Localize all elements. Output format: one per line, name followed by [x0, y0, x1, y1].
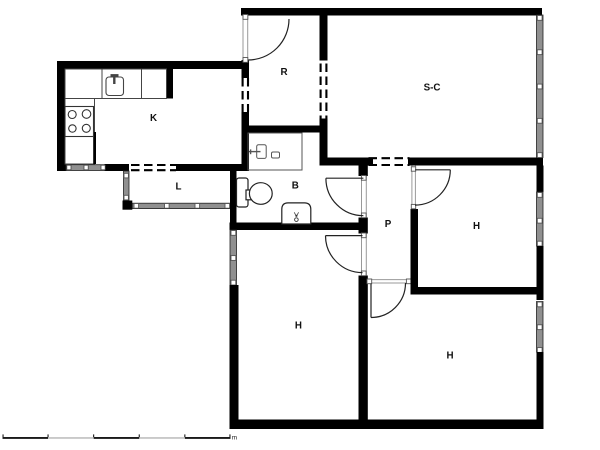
- svg-text:H: H: [473, 221, 480, 232]
- svg-text:K: K: [150, 113, 157, 124]
- svg-text:H: H: [446, 350, 453, 361]
- svg-text:P: P: [385, 219, 392, 230]
- svg-text:R: R: [280, 67, 287, 78]
- svg-text:L: L: [176, 182, 182, 193]
- svg-text:S-C: S-C: [424, 82, 441, 93]
- svg-text:m: m: [232, 434, 237, 441]
- svg-text:H: H: [295, 320, 302, 331]
- svg-text:B: B: [292, 181, 299, 192]
